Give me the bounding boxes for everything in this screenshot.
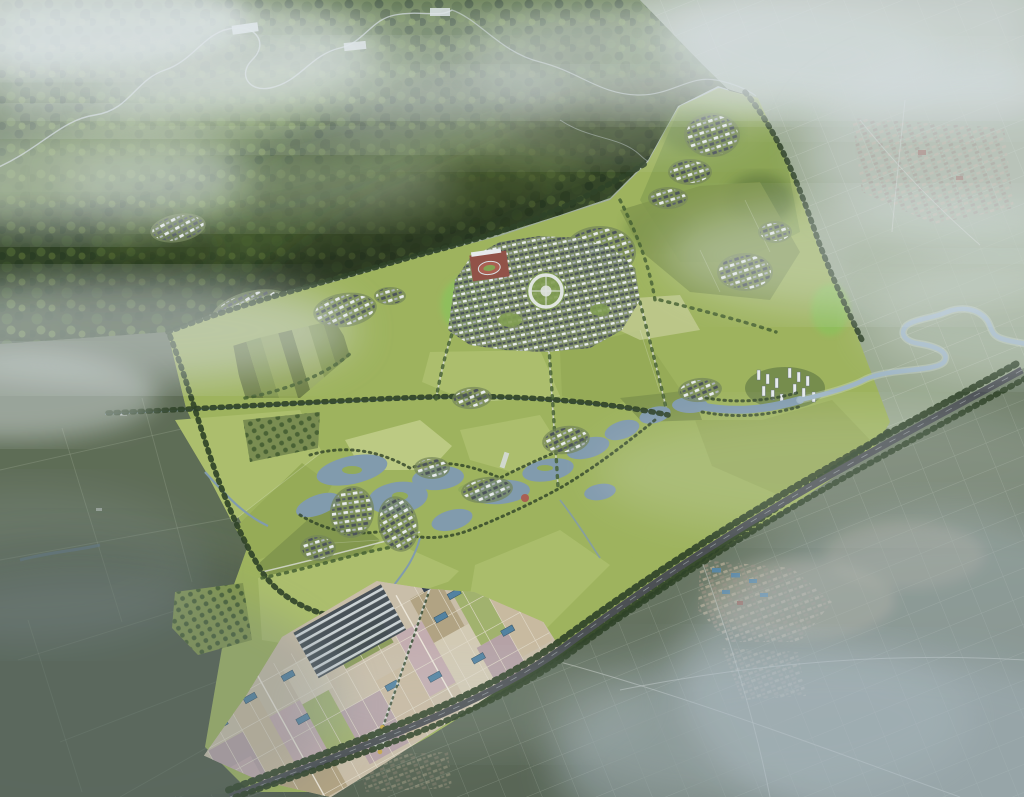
lakeside-village — [414, 457, 450, 479]
bright-green-hill — [811, 284, 849, 336]
tower — [775, 378, 778, 388]
tower — [797, 372, 800, 382]
tan-field-patch — [825, 521, 985, 589]
lake-island — [537, 465, 553, 471]
village-cluster — [648, 187, 688, 209]
tower — [766, 374, 769, 384]
central-town — [448, 236, 640, 352]
tower — [806, 376, 809, 386]
distant-town-red-roof — [918, 150, 926, 155]
village-buildings — [670, 161, 710, 183]
village-cluster — [374, 287, 406, 305]
blue-roof-building — [749, 579, 757, 583]
village-cluster — [668, 159, 712, 185]
tower — [762, 386, 765, 396]
blue-roof-building — [722, 590, 730, 594]
village-cluster-southwest — [300, 535, 336, 561]
blue-roof-building — [760, 593, 768, 597]
aerial-rendering-stage — [0, 0, 1024, 797]
village-buildings — [416, 459, 448, 477]
tower — [757, 370, 760, 380]
village-buildings — [719, 255, 771, 289]
village-buildings — [760, 223, 790, 241]
village-cluster — [758, 221, 792, 243]
village-cluster-hilltop — [684, 113, 740, 157]
village-cluster-east-quarter — [717, 253, 773, 291]
tower — [788, 368, 791, 378]
masterplan-rendering — [0, 0, 1024, 797]
lake-island — [342, 466, 362, 474]
distant-town-red-roof — [956, 176, 963, 180]
village-buildings — [650, 189, 686, 207]
viaduct-bridge — [430, 8, 450, 16]
village-buildings — [302, 537, 334, 559]
blue-roof-building — [731, 573, 740, 578]
village-buildings — [376, 288, 404, 304]
red-roof-building — [737, 601, 743, 605]
village-buildings — [686, 115, 738, 155]
blue-roof-building — [712, 568, 721, 573]
town-green-court — [590, 304, 610, 316]
dark-field-patch — [590, 700, 810, 790]
school-with-track — [469, 248, 510, 282]
farm-building-speck — [96, 508, 102, 511]
circular-ring-plaza — [527, 272, 565, 310]
red-plaza-node — [521, 494, 529, 502]
town-green-court — [498, 313, 522, 327]
